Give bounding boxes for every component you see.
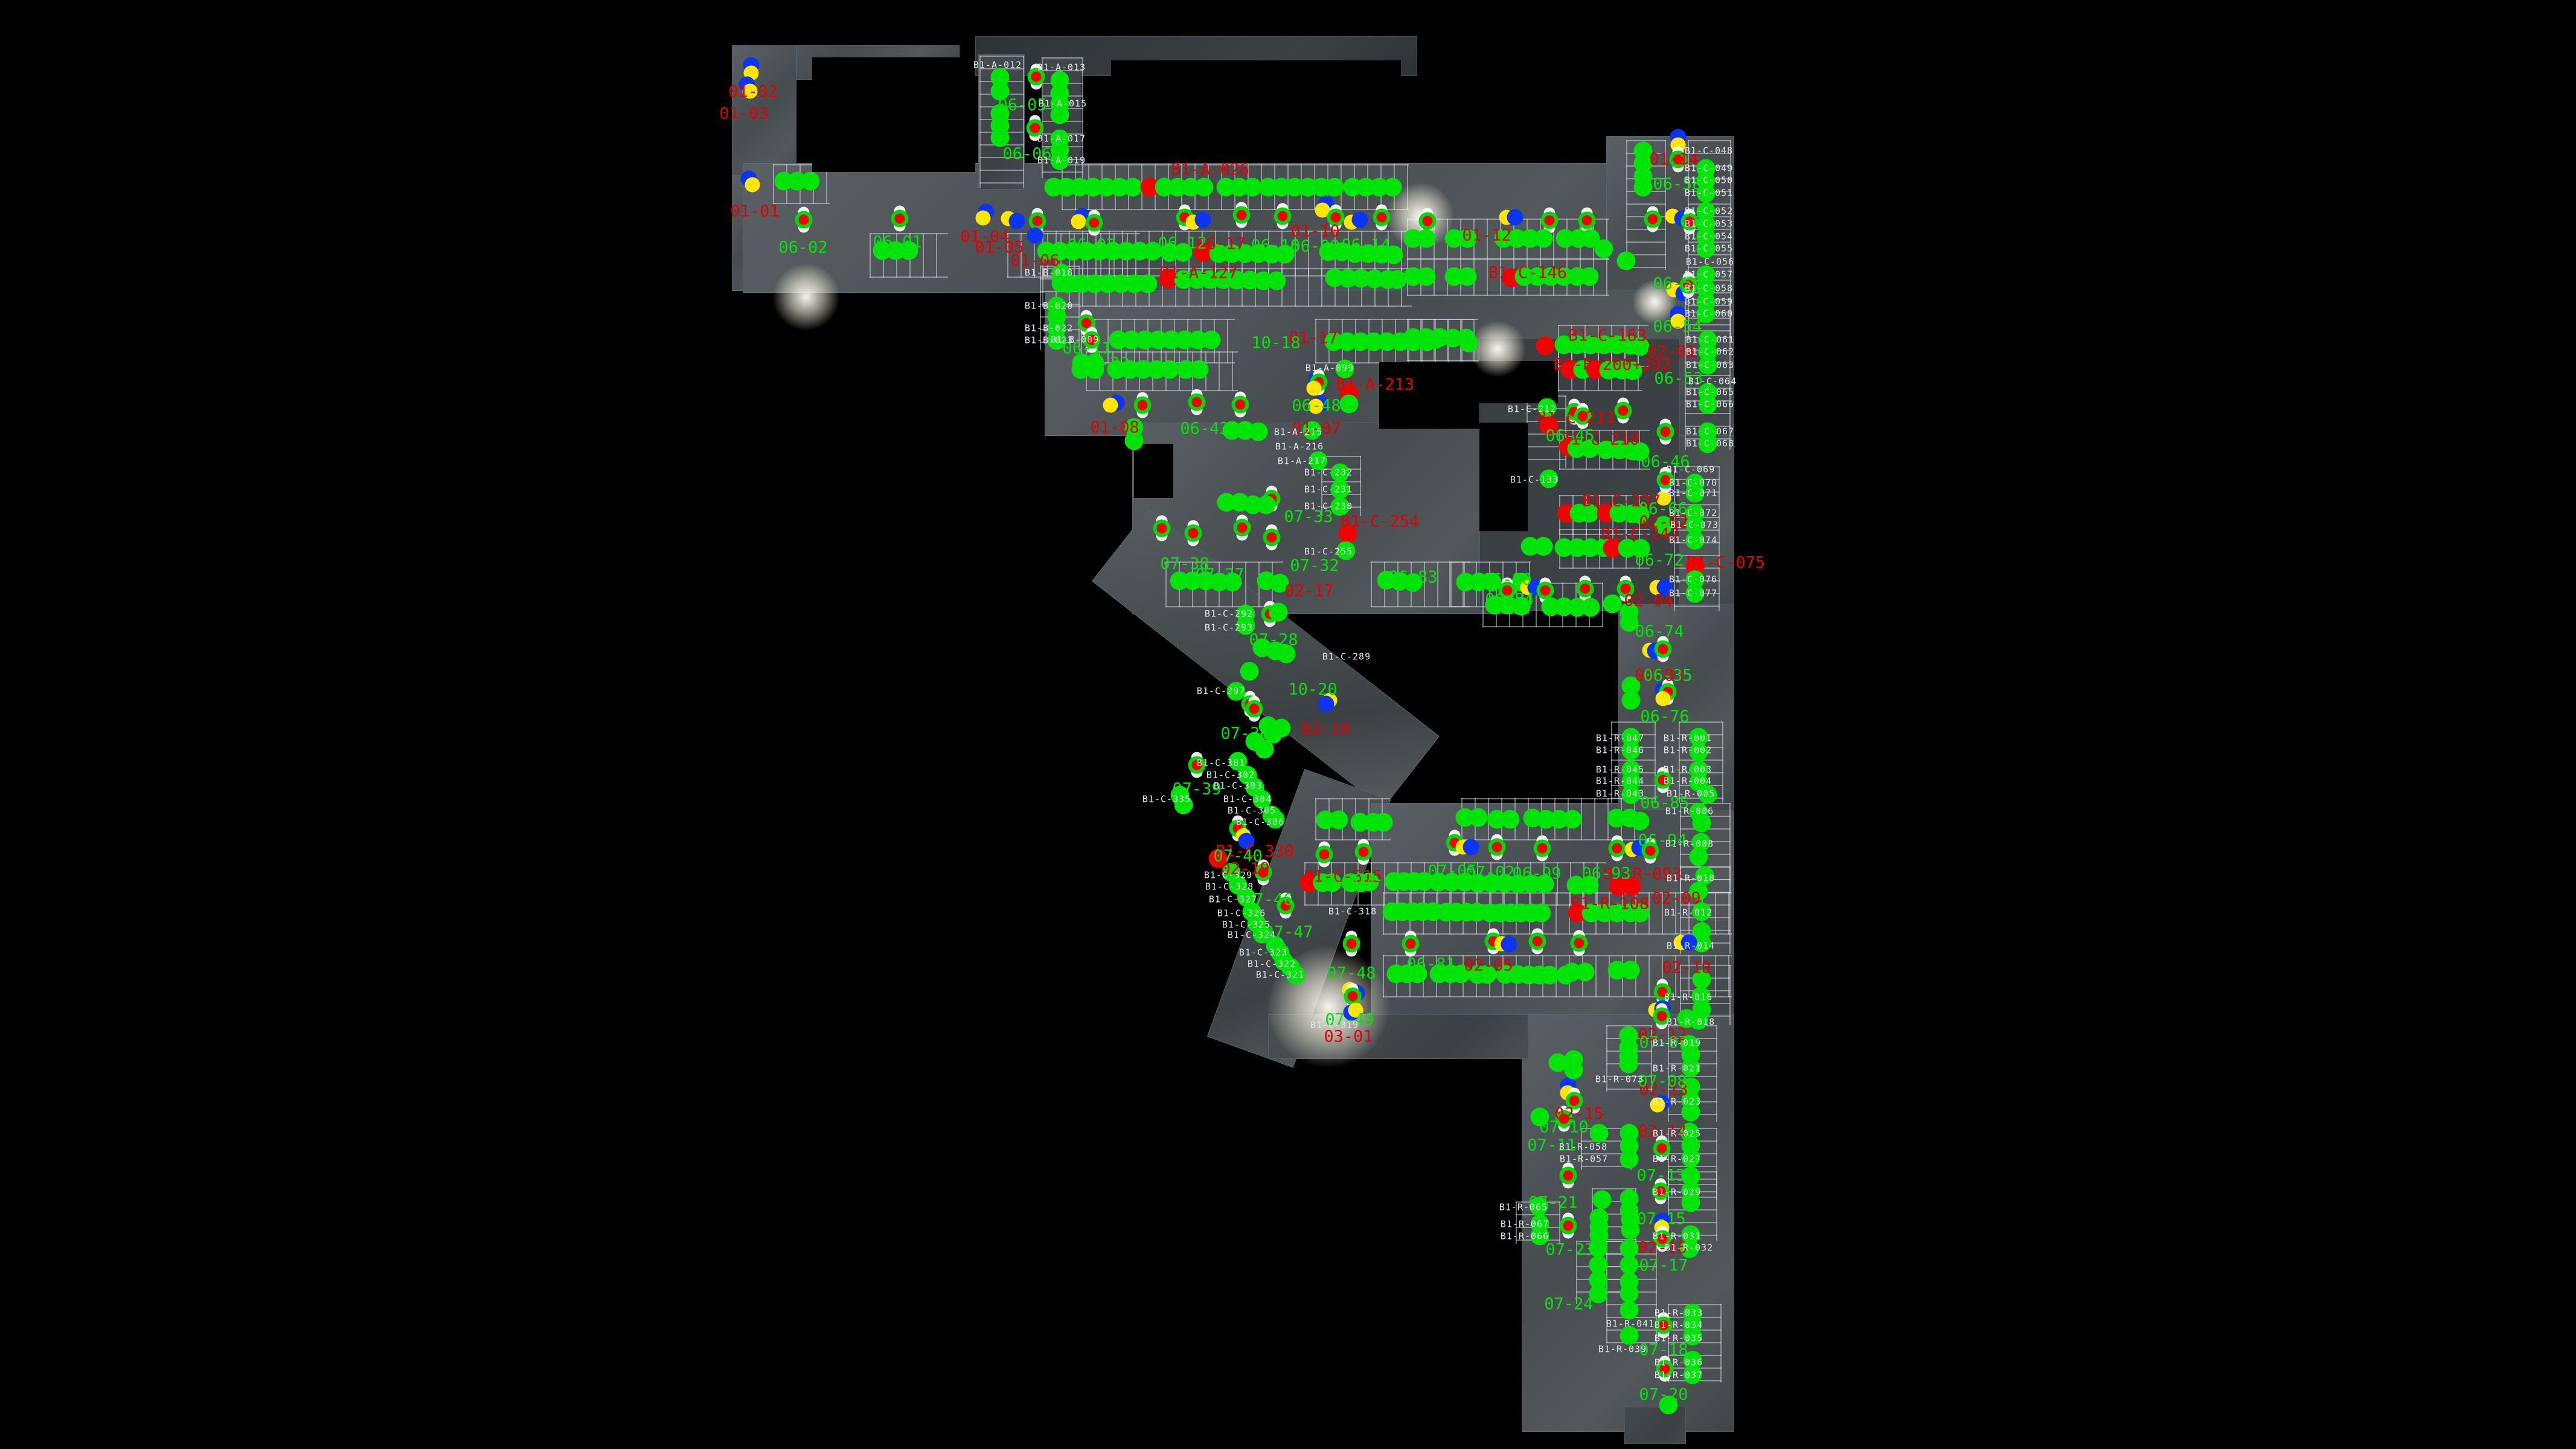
sensor-marker[interactable]: [1134, 397, 1152, 414]
free-spot-marker[interactable]: [1139, 275, 1158, 293]
device-label: 07-10: [1539, 1119, 1588, 1136]
spot-label: B1-C-054: [1685, 232, 1733, 241]
free-spot-marker[interactable]: [1581, 598, 1600, 617]
spot-label: B1-C-326: [1217, 909, 1266, 918]
spot-label: B1-C-289: [1322, 653, 1371, 662]
free-spot-marker[interactable]: [1593, 1191, 1612, 1209]
camera-marker-yellow[interactable]: [1656, 691, 1671, 706]
device-label: 10-18: [1251, 335, 1300, 351]
spot-label: B1-C-052: [1685, 207, 1733, 216]
device-label: 06-12: [1158, 235, 1206, 252]
sensor-marker[interactable]: [1344, 988, 1362, 1005]
spot-label: B1-R-034: [1655, 1321, 1703, 1330]
device-label: 07-48: [1327, 965, 1376, 982]
spot-label: B1-C-305: [1228, 807, 1276, 816]
alert-label: B1-R-108: [1571, 896, 1649, 912]
camera-marker-yellow[interactable]: [745, 178, 760, 193]
device-label: 07-37: [1195, 567, 1244, 583]
spot-label: B1-R-043: [1596, 790, 1644, 799]
spot-label: B1-R-032: [1665, 1244, 1713, 1253]
spot-label: B1-C-321: [1256, 971, 1304, 980]
sensor-marker[interactable]: [1232, 396, 1249, 414]
free-spot-marker[interactable]: [1590, 1124, 1609, 1143]
sensor-marker[interactable]: [1185, 525, 1202, 542]
sensor-marker[interactable]: [1078, 315, 1095, 332]
camera-marker-yellow[interactable]: [1103, 398, 1118, 413]
spot-label: B1-C-068: [1686, 440, 1734, 449]
free-spot-marker[interactable]: [1417, 267, 1436, 286]
spot-label: B1-A-215: [1274, 428, 1322, 437]
sensor-marker[interactable]: [1655, 641, 1672, 658]
device-label: 06-93: [1581, 866, 1630, 882]
sensor-marker[interactable]: [1263, 529, 1281, 546]
free-spot-marker[interactable]: [1603, 595, 1622, 613]
device-label: 07-23: [1545, 1242, 1594, 1258]
device-label: 07-32: [1290, 558, 1339, 574]
spot-label: B1-C-335: [1142, 795, 1191, 804]
parking-map-viewport: B1 parking garage occupancy map 01-0201-…: [0, 0, 2576, 1449]
spot-label: B1-R-031: [1653, 1232, 1701, 1241]
spot-label: B1-R-066: [1501, 1232, 1549, 1241]
device-label: 06-48: [1292, 398, 1341, 414]
alert-label: B1-C-254: [1341, 514, 1419, 530]
spot-label: B1-C-063: [1686, 361, 1734, 370]
sensor-marker[interactable]: [1577, 580, 1594, 598]
spot-label: B1-R-067: [1501, 1220, 1549, 1229]
spot-label: B1-A-099: [1306, 364, 1354, 373]
spot-label: B1-R-041: [1606, 1320, 1655, 1329]
spot-label: B1-R-037: [1655, 1371, 1703, 1380]
sensor-marker[interactable]: [1274, 208, 1292, 225]
free-spot-marker[interactable]: [1580, 267, 1599, 286]
spot-label: B1-C-328: [1205, 883, 1254, 892]
alert-label: 01-02: [728, 84, 777, 100]
device-label: 07-02: [1466, 865, 1514, 881]
free-spot-marker[interactable]: [801, 172, 820, 191]
device-label: 06-83: [1388, 569, 1437, 586]
spot-label: B1-C-324: [1228, 931, 1276, 940]
occupied-spot-marker[interactable]: [1536, 337, 1555, 356]
spot-label: B1-A-013: [1037, 63, 1086, 72]
alert-label: 02-18: [1301, 721, 1350, 738]
camera-marker-blue[interactable]: [1507, 210, 1523, 226]
spot-label: B1-R-023: [1653, 1098, 1701, 1107]
spot-label: B1-C-304: [1223, 795, 1272, 804]
spot-label: B1-C-048: [1685, 147, 1733, 156]
sensor-marker[interactable]: [891, 210, 909, 228]
sensor-marker[interactable]: [1529, 933, 1546, 950]
spot-label: B1-R-033: [1655, 1309, 1703, 1318]
sensor-marker[interactable]: [795, 211, 813, 229]
spot-label: B1-R-073: [1595, 1075, 1644, 1084]
spot-label: B1-B-009: [1051, 336, 1099, 345]
device-label: 06-02: [778, 240, 827, 256]
device-label: 06-14: [1341, 237, 1390, 254]
spot-label: B1-R-010: [1667, 874, 1715, 883]
floor-area: [1624, 1407, 1686, 1444]
device-label: 07-24: [1544, 1296, 1593, 1313]
spot-label: B1-C-319: [1310, 1021, 1359, 1030]
device-label: 06-45: [1545, 428, 1594, 444]
spot-label: B1-A-015: [1039, 100, 1087, 109]
free-spot-marker[interactable]: [1427, 330, 1446, 349]
spot-label: B1-C-292: [1205, 610, 1253, 619]
free-spot-marker[interactable]: [1620, 1284, 1639, 1303]
spot-label: B1-R-065: [1499, 1203, 1548, 1212]
spot-label: B1-A-017: [1037, 135, 1086, 144]
spot-label: B1-R-008: [1665, 840, 1714, 849]
alert-label: 02-10: [1662, 960, 1711, 976]
sensor-marker[interactable]: [1657, 423, 1674, 441]
sensor-marker[interactable]: [1246, 700, 1263, 718]
sensor-marker[interactable]: [1615, 402, 1632, 420]
device-label: 07-40: [1213, 848, 1262, 865]
spot-label: B1-R-029: [1653, 1188, 1701, 1197]
alert-label: B1-A-026: [1171, 162, 1249, 178]
spot-label: B1-C-057: [1685, 270, 1733, 280]
free-spot-marker[interactable]: [1534, 537, 1553, 556]
free-spot-marker[interactable]: [1240, 662, 1259, 681]
sensor-marker[interactable]: [1343, 935, 1360, 953]
spot-label: B1-C-064: [1688, 377, 1737, 386]
spot-label: B1-C-232: [1304, 469, 1353, 478]
spot-label: B1-R-021: [1653, 1064, 1701, 1073]
spot-label: B1-C-325: [1222, 921, 1270, 930]
spot-label: B1-R-039: [1598, 1345, 1647, 1354]
device-label: 06-81: [1406, 956, 1455, 973]
spot-label: B1-C-329: [1204, 871, 1252, 880]
device-label: 07-28: [1249, 632, 1298, 648]
alert-label: B1-A-127: [1159, 265, 1238, 281]
spot-label: B1-R-014: [1667, 942, 1715, 951]
spot-label: B1-C-323: [1239, 948, 1287, 958]
sensor-marker[interactable]: [1373, 209, 1391, 226]
alert-label: B1-C-146: [1488, 265, 1567, 281]
sensor-marker[interactable]: [1541, 212, 1559, 229]
alert-label: 02-05: [1464, 958, 1513, 974]
spot-label: B1-R-019: [1653, 1039, 1701, 1048]
spot-label: B1-C-060: [1685, 310, 1733, 319]
spot-label: B1-C-055: [1685, 245, 1733, 254]
sensor-marker[interactable]: [1233, 206, 1251, 224]
sensor-marker[interactable]: [1402, 935, 1420, 953]
free-spot-marker[interactable]: [1690, 848, 1708, 866]
spot-label: B1-B-022: [1025, 324, 1073, 333]
free-spot-marker[interactable]: [1533, 904, 1551, 923]
spot-label: B1-C-073: [1670, 521, 1719, 530]
device-label: 07-15: [1636, 1211, 1685, 1227]
device-label: 07-45: [1354, 872, 1403, 888]
spot-label: B1-C-318: [1328, 907, 1377, 916]
spot-label: B1-R-004: [1664, 777, 1712, 786]
spot-label: B1-C-212: [1508, 405, 1556, 414]
camera-marker-blue[interactable]: [1501, 936, 1517, 953]
alert-label: 01-03: [719, 106, 768, 122]
spot-label: B1-C-069: [1667, 465, 1715, 475]
free-spot-marker[interactable]: [1195, 178, 1214, 197]
free-spot-marker[interactable]: [1595, 240, 1613, 258]
light-flare: [1470, 321, 1525, 377]
free-spot-marker[interactable]: [1383, 178, 1402, 197]
free-spot-marker[interactable]: [1202, 331, 1221, 350]
free-spot-marker[interactable]: [1621, 961, 1640, 980]
device-label: 06-84: [1485, 592, 1534, 608]
free-spot-marker[interactable]: [1249, 423, 1268, 441]
spot-label: B1-C-301: [1197, 759, 1245, 768]
spot-label: B1-A-019: [1037, 156, 1086, 165]
device-label: 06-35: [1643, 668, 1692, 684]
sensor-marker[interactable]: [1534, 840, 1551, 857]
device-label: 07-17: [1639, 1258, 1688, 1274]
free-spot-marker[interactable]: [1617, 252, 1636, 270]
spot-label: B1-A-012: [973, 61, 1022, 70]
sensor-marker[interactable]: [1644, 211, 1662, 228]
light-flare: [773, 264, 839, 330]
spot-label: B1-R-002: [1664, 746, 1712, 755]
spot-label: B1-R-057: [1560, 1155, 1608, 1164]
free-spot-marker[interactable]: [1257, 496, 1276, 514]
sensor-marker[interactable]: [1560, 1217, 1577, 1235]
sensor-marker[interactable]: [1316, 846, 1333, 863]
camera-marker-yellow[interactable]: [1071, 214, 1086, 229]
device-label: 07-20: [1639, 1387, 1688, 1403]
alert-label: B1-C-075: [1687, 555, 1765, 571]
spot-label: B1-C-074: [1669, 536, 1717, 545]
spot-label: B1-R-035: [1655, 1334, 1703, 1343]
alert-label: 02-17: [1284, 583, 1333, 600]
device-label: 06-08: [1290, 238, 1339, 255]
spot-label: B1-C-306: [1236, 818, 1284, 827]
free-spot-marker[interactable]: [1534, 229, 1553, 248]
alert-label: 01-12: [1462, 228, 1511, 244]
spot-label: B1-C-061: [1686, 336, 1734, 345]
spot-label: B1-C-049: [1685, 164, 1733, 173]
camera-marker-yellow[interactable]: [1307, 381, 1322, 396]
spot-label: B1-C-327: [1209, 895, 1257, 904]
spot-label: B1-R-025: [1653, 1130, 1701, 1139]
device-label: 06-72: [1635, 552, 1684, 569]
spot-label: B1-R-003: [1664, 766, 1712, 775]
spot-label: B1-C-322: [1248, 960, 1296, 969]
spot-label: B1-C-070: [1669, 479, 1717, 488]
device-label: 07-08: [1638, 1073, 1687, 1090]
spot-label: B1-C-231: [1304, 485, 1353, 494]
spot-label: B1-C-230: [1304, 502, 1353, 511]
free-spot-marker[interactable]: [1340, 395, 1359, 414]
device-label: 06-07: [1067, 237, 1116, 254]
free-spot-marker[interactable]: [1501, 810, 1520, 829]
spot-label: B1-C-058: [1685, 284, 1733, 293]
spot-label: B1-R-036: [1655, 1358, 1703, 1367]
free-spot-marker[interactable]: [1576, 963, 1595, 982]
device-label: 07-36: [1220, 726, 1269, 742]
spot-label: B1-C-072: [1669, 509, 1717, 518]
unscanned-void: [812, 57, 975, 172]
camera-marker-blue[interactable]: [1463, 839, 1479, 856]
free-spot-marker[interactable]: [1622, 691, 1641, 710]
device-label: 10-20: [1288, 682, 1337, 698]
sensor-marker[interactable]: [1086, 214, 1103, 232]
spot-label: B1-B-018: [1025, 269, 1073, 278]
free-spot-marker[interactable]: [1374, 813, 1393, 832]
device-label: 06-74: [1635, 624, 1684, 640]
spot-label: B1-A-216: [1275, 443, 1324, 452]
sensor-marker[interactable]: [1153, 520, 1171, 537]
free-spot-marker[interactable]: [1459, 334, 1478, 353]
free-spot-marker[interactable]: [1631, 812, 1650, 831]
camera-marker-blue[interactable]: [1195, 212, 1211, 228]
camera-marker-yellow[interactable]: [976, 211, 991, 226]
free-spot-marker[interactable]: [1620, 1055, 1638, 1073]
spot-label: B1-R-044: [1596, 777, 1644, 786]
free-spot-marker[interactable]: [1330, 811, 1348, 830]
sensor-marker[interactable]: [1537, 582, 1554, 600]
unscanned-void: [1134, 444, 1173, 498]
spot-label: B1-C-293: [1205, 624, 1253, 633]
free-spot-marker[interactable]: [1417, 229, 1436, 248]
alert-label: 01-01: [730, 203, 779, 220]
alert-label: 03-01: [1324, 1029, 1373, 1045]
device-label: 06-54: [1653, 319, 1702, 335]
free-spot-marker[interactable]: [1190, 360, 1209, 379]
spot-label: B1-C-051: [1685, 189, 1733, 198]
spot-label: B1-C-303: [1214, 782, 1262, 791]
alert-label: B1-A-213: [1336, 377, 1414, 393]
sensor-marker[interactable]: [1419, 213, 1437, 230]
alert-label: 02-09: [1652, 891, 1700, 907]
spot-label: B1-C-067: [1686, 427, 1734, 437]
sensor-marker[interactable]: [1234, 519, 1251, 537]
device-label: 06-80: [1482, 572, 1531, 588]
free-spot-marker[interactable]: [1565, 1061, 1583, 1080]
camera-marker-blue[interactable]: [1009, 213, 1025, 229]
free-spot-marker[interactable]: [1620, 1150, 1639, 1169]
spot-label: B1-C-062: [1686, 348, 1734, 357]
camera-marker-blue[interactable]: [1352, 212, 1368, 228]
spot-label: B1-C-071: [1669, 489, 1717, 498]
spot-label: B1-C-053: [1685, 220, 1733, 229]
spot-label: B1-C-297: [1197, 687, 1245, 696]
free-spot-marker[interactable]: [1620, 1301, 1639, 1320]
spot-label: B1-C-302: [1206, 771, 1255, 780]
spot-label: B1-R-046: [1596, 746, 1644, 755]
spot-label: B1-C-065: [1686, 388, 1734, 397]
spot-label: B1-R-006: [1665, 807, 1714, 816]
spot-label: B1-C-059: [1685, 298, 1733, 307]
spot-label: B1-C-050: [1685, 176, 1733, 185]
spot-label: B1-R-018: [1667, 1018, 1715, 1027]
device-label: 06-76: [1640, 709, 1689, 725]
sensor-marker[interactable]: [1609, 840, 1626, 857]
free-spot-marker[interactable]: [1563, 810, 1582, 829]
device-label: 07-13: [1636, 1168, 1685, 1184]
spot-label: B1-C-255: [1304, 548, 1353, 557]
spot-label: B1-R-012: [1664, 909, 1713, 918]
spot-label: B1-B-020: [1025, 302, 1073, 311]
sensor-marker[interactable]: [1188, 394, 1206, 411]
spot-label: B1-C-066: [1686, 400, 1734, 409]
free-spot-marker[interactable]: [1620, 1256, 1639, 1275]
free-spot-marker[interactable]: [1634, 178, 1653, 197]
device-label: 06-99: [1512, 866, 1561, 882]
spot-label: B1-R-027: [1653, 1155, 1701, 1164]
spot-label: B1-C-056: [1686, 258, 1734, 267]
spot-label: B1-C-133: [1510, 476, 1559, 485]
spot-label: B1-A-217: [1278, 457, 1326, 466]
device-label: 06-01: [873, 234, 921, 251]
free-spot-marker[interactable]: [1325, 178, 1344, 197]
spot-label: B1-R-005: [1667, 790, 1715, 799]
unscanned-void: [1379, 362, 1479, 429]
camera-marker-blue[interactable]: [1027, 228, 1043, 244]
device-label: 06-22: [1080, 356, 1129, 372]
alert-label: B1-C-242: [1601, 526, 1679, 543]
free-spot-marker[interactable]: [1267, 272, 1286, 290]
free-spot-marker[interactable]: [1124, 178, 1142, 197]
sensor-marker[interactable]: [1488, 839, 1506, 856]
alert-label: B1-C-163: [1568, 328, 1647, 344]
sensor-marker[interactable]: [1571, 935, 1588, 952]
spot-label: B1-R-016: [1664, 993, 1713, 1002]
alert-label: 02-04: [1624, 593, 1673, 609]
free-spot-marker[interactable]: [1469, 808, 1488, 827]
sensor-marker[interactable]: [1355, 843, 1373, 861]
spot-label: B1-C-077: [1669, 589, 1717, 598]
free-spot-marker[interactable]: [1269, 603, 1288, 622]
alert-label: 01-06: [1010, 253, 1059, 269]
spot-label: B1-R-047: [1596, 734, 1644, 743]
sensor-marker[interactable]: [1560, 1167, 1577, 1185]
spot-label: B1-R-001: [1664, 734, 1712, 743]
spot-label: B1-C-076: [1669, 575, 1717, 584]
spot-label: B1-R-045: [1596, 766, 1644, 775]
unscanned-void: [1111, 60, 1401, 157]
sensor-marker[interactable]: [1578, 212, 1596, 229]
spot-label: B1-R-058: [1559, 1143, 1607, 1152]
free-spot-marker[interactable]: [1458, 267, 1477, 286]
device-label: 06-43: [1180, 421, 1229, 437]
alert-label: 01-08: [1090, 420, 1139, 436]
